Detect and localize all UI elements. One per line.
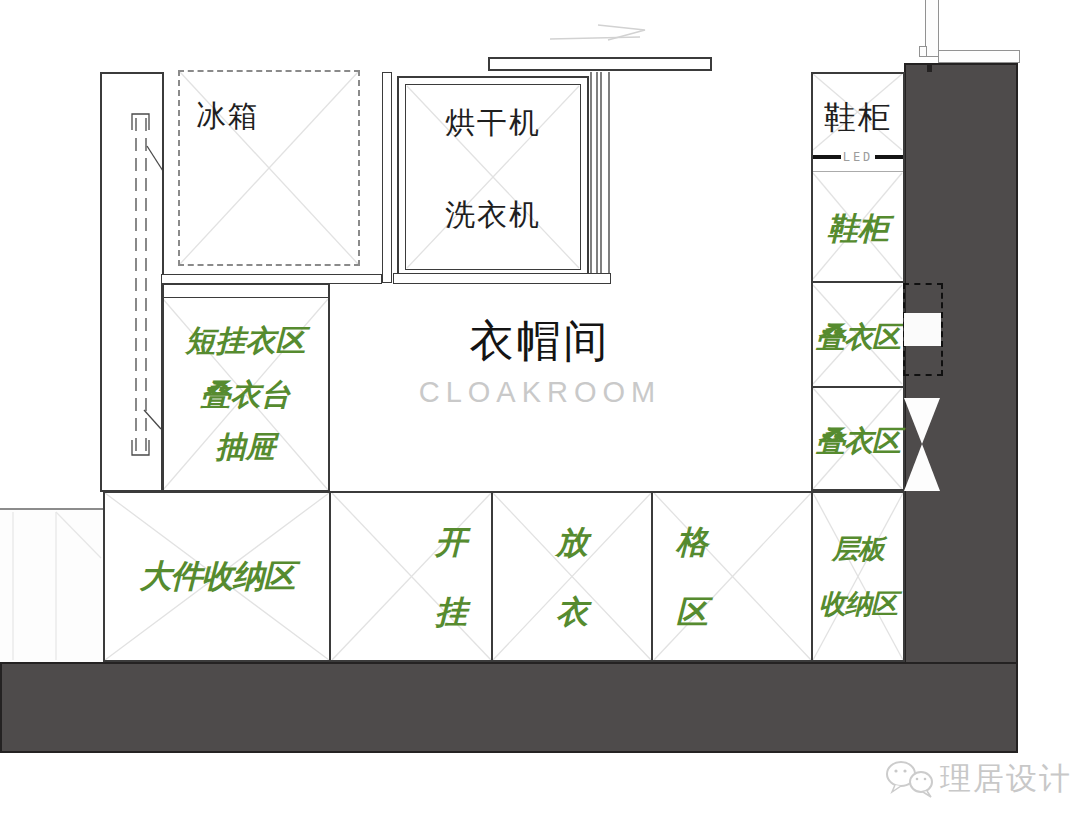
- panel-texture-lines: [13, 512, 101, 660]
- cabinet-divider-1: [813, 281, 903, 283]
- watermark: 理居设计: [884, 756, 1076, 802]
- open-hang-label: 开 挂: [435, 507, 467, 647]
- put-clothes-label: 放 衣: [556, 507, 588, 647]
- put-clothes-cell: 放 衣: [491, 491, 653, 662]
- led-label: LED: [841, 150, 876, 164]
- led-bar-right: [875, 155, 903, 159]
- left-zone-top-rail: [163, 297, 328, 298]
- wall-shelf: [488, 57, 712, 71]
- shelf-storage-cell: 层板 收纳区: [811, 491, 905, 662]
- fridge-side-panel: [382, 72, 392, 283]
- room-subtitle: CLOAKROOM: [390, 376, 690, 409]
- open-hang-cell: 开 挂: [329, 491, 493, 662]
- floorplan-canvas: 冰箱 烘干机 洗衣机 鞋柜 LED 鞋柜 叠衣区 叠衣区 短挂衣区 叠衣台 抽屉: [0, 0, 1080, 824]
- fold-table-label: 叠衣台: [163, 375, 328, 416]
- shoe-cabinet-top-label: 鞋柜: [813, 96, 903, 140]
- fold-area-2-label: 叠衣区: [813, 422, 903, 462]
- wall-section-bowtie-icon: [903, 398, 941, 491]
- wechat-icon: [884, 758, 936, 800]
- bulk-storage-cell: 大件收纳区: [103, 491, 331, 662]
- led-strip: LED: [813, 152, 903, 162]
- fridge-label: 冰箱: [196, 96, 260, 137]
- shelf-storage-label: 层板 收纳区: [819, 522, 897, 632]
- drawer-label: 抽屉: [163, 427, 328, 468]
- cabinet-divider-2: [813, 386, 903, 388]
- grid-zone-cell: 格 区: [651, 491, 813, 662]
- fold-area-1-label: 叠衣区: [813, 318, 903, 358]
- watermark-brand: 理居设计: [940, 758, 1072, 800]
- dryer-label: 烘干机: [406, 103, 580, 144]
- short-hang-label: 短挂衣区: [163, 321, 328, 362]
- leader-arrow-icon: [550, 25, 645, 40]
- duct-horizontal: [938, 50, 1020, 63]
- bulk-storage-label: 大件收纳区: [140, 555, 295, 599]
- right-cabinet-column: 鞋柜 LED 鞋柜 叠衣区 叠衣区: [811, 72, 905, 491]
- cabinet-thin-divider: [813, 171, 903, 172]
- washer-label: 洗衣机: [406, 195, 580, 236]
- fridge-outline: 冰箱: [178, 70, 360, 266]
- wall-anchor-tick: [927, 63, 932, 72]
- laundry-tower-inner: 烘干机 洗衣机: [405, 84, 581, 270]
- washer-side-panel-lines: [591, 72, 609, 283]
- left-zone-panel: 短挂衣区 叠衣台 抽屉: [161, 283, 330, 492]
- duct-step: [919, 46, 927, 57]
- grid-zone-label: 格 区: [676, 507, 708, 647]
- laundry-base-board: [393, 273, 611, 284]
- shoe-cabinet-lower-label: 鞋柜: [813, 208, 903, 250]
- left-wall: [100, 72, 164, 492]
- duct-vertical: [925, 0, 939, 57]
- wall-niche-window: [904, 313, 941, 346]
- led-bar-left: [813, 155, 841, 159]
